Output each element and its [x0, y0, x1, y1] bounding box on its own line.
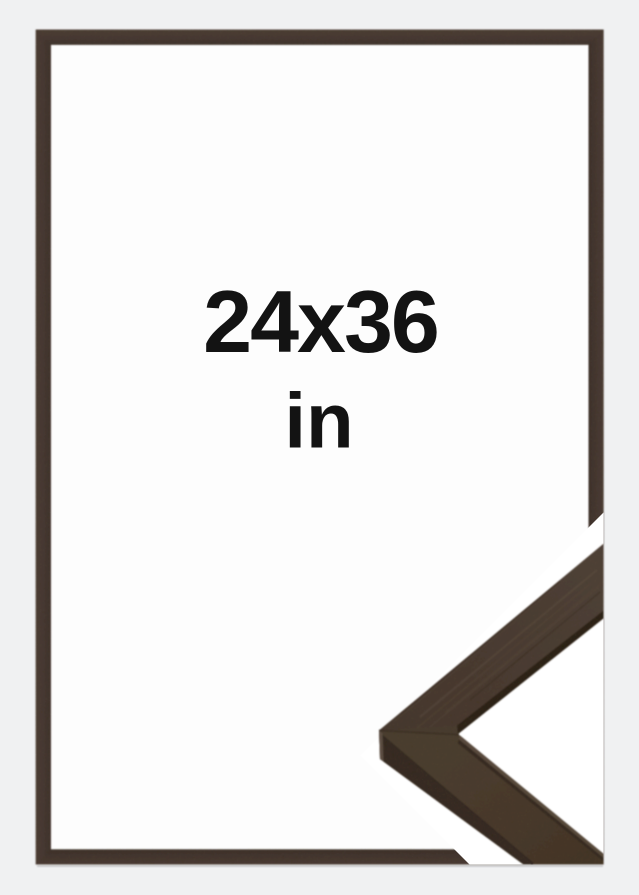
svg-text:in: in: [284, 377, 353, 465]
svg-text:24x36: 24x36: [203, 272, 438, 371]
